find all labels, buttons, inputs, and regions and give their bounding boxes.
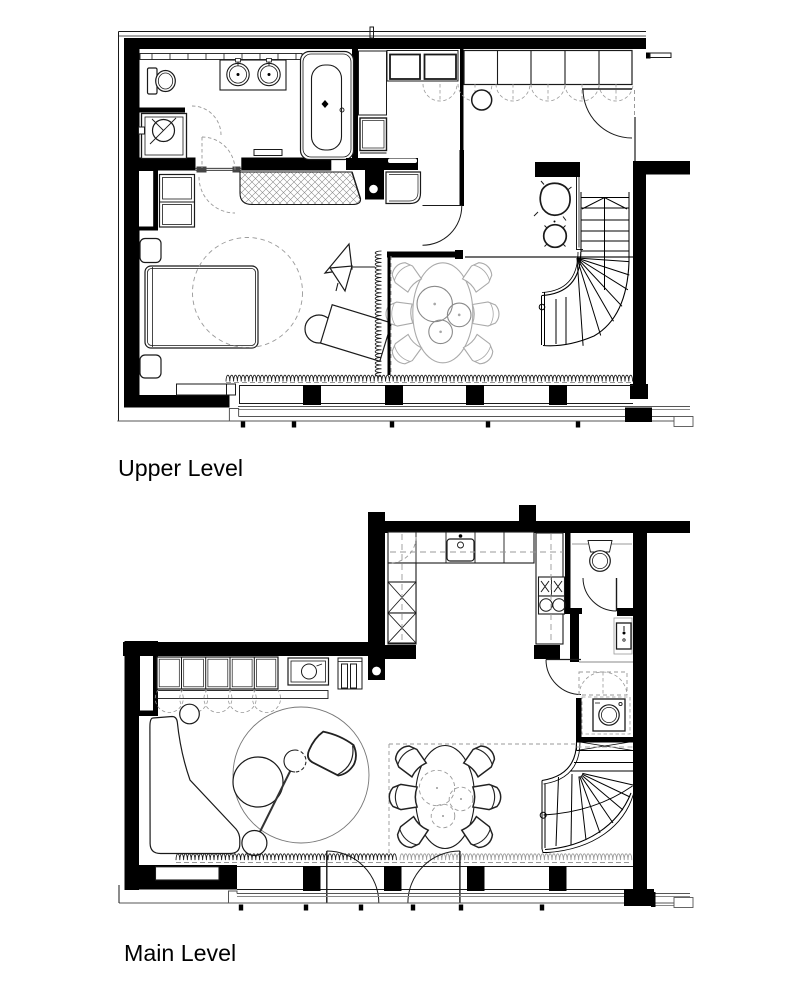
svg-text:Main Level: Main Level (124, 940, 236, 966)
svg-text:Upper Level: Upper Level (118, 455, 243, 481)
